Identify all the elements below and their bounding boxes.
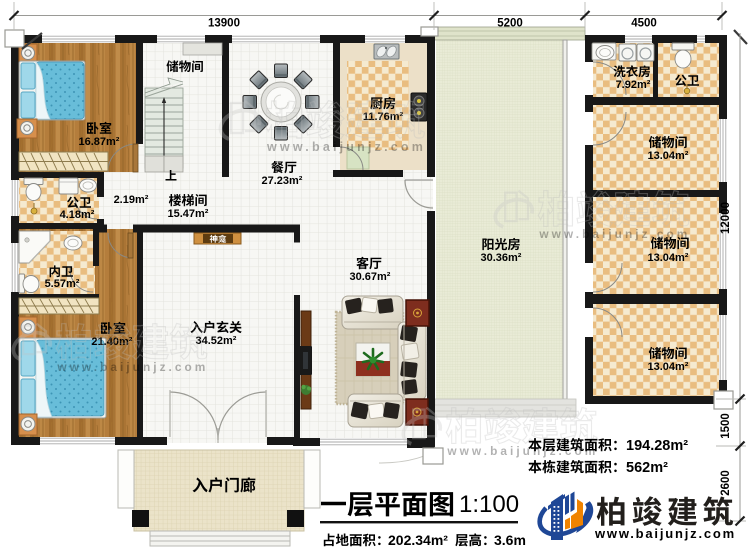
svg-text:www.baijunjz.com: www.baijunjz.com: [266, 140, 426, 154]
svg-text:12000: 12000: [720, 202, 732, 234]
svg-text:30.67m²: 30.67m²: [350, 271, 391, 283]
svg-text:www.baijunjz.com: www.baijunjz.com: [56, 360, 208, 374]
svg-text:13900: 13900: [208, 18, 240, 30]
svg-text:4500: 4500: [631, 18, 657, 30]
svg-text:7.92m²: 7.92m²: [616, 79, 651, 91]
svg-text:2600: 2600: [720, 470, 732, 496]
svg-text:27.23m²: 27.23m²: [262, 175, 303, 187]
svg-text:194.28m²: 194.28m²: [626, 438, 688, 454]
svg-text:4.18m²: 4.18m²: [60, 209, 95, 221]
svg-text:1500: 1500: [720, 413, 732, 439]
svg-text:30.36m²: 30.36m²: [481, 252, 522, 264]
svg-text:5.57m²: 5.57m²: [45, 278, 80, 290]
svg-text:5200: 5200: [497, 18, 523, 30]
svg-text:202.34m²: 202.34m²: [388, 532, 448, 548]
svg-text:13.04m²: 13.04m²: [648, 150, 689, 162]
svg-text:13.04m²: 13.04m²: [648, 361, 689, 373]
svg-text:562m²: 562m²: [626, 460, 668, 476]
svg-text:www.baijunjz.com: www.baijunjz.com: [594, 526, 736, 541]
svg-text:15.47m²: 15.47m²: [168, 208, 209, 220]
svg-text:1:100: 1:100: [459, 491, 519, 518]
svg-text:16.87m²: 16.87m²: [79, 136, 120, 148]
svg-text:3.6m: 3.6m: [494, 532, 526, 548]
svg-text:13.04m²: 13.04m²: [648, 252, 689, 264]
svg-text:www.baijunjz.com: www.baijunjz.com: [538, 227, 690, 241]
svg-text:www.baijunjz.com: www.baijunjz.com: [446, 444, 598, 458]
svg-text:2.19m²: 2.19m²: [114, 194, 149, 206]
